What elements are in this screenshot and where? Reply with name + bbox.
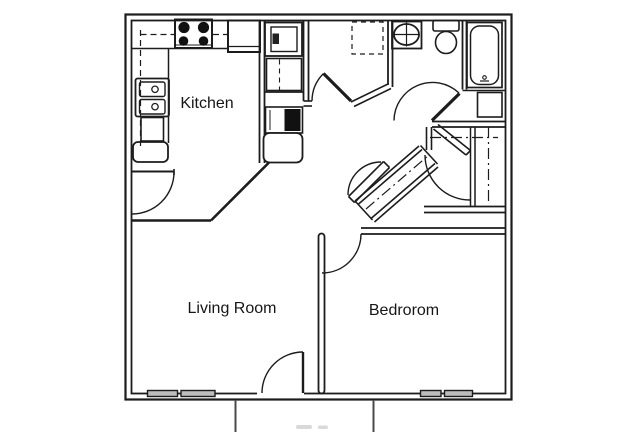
door-opening-eraser <box>257 391 304 396</box>
washer-icon <box>265 23 302 57</box>
window <box>421 391 442 397</box>
bathroom-door <box>394 82 460 120</box>
entry-door <box>262 352 303 393</box>
door-arc <box>312 74 324 102</box>
water-heater-icon <box>266 107 303 133</box>
hall-door <box>304 21 393 107</box>
room-label-bedroom: Bedrorom <box>369 302 439 319</box>
kitchen-area <box>132 20 270 221</box>
utility-column <box>260 21 309 164</box>
bathroom-area <box>352 21 506 121</box>
linen-shelf <box>478 93 503 118</box>
door-leaf <box>324 74 352 102</box>
walk-in-closet <box>424 122 506 213</box>
bedroom-door-arc <box>322 234 361 273</box>
refrigerator-icon <box>228 21 260 53</box>
room-label-kitchen: Kitchen <box>180 95 233 112</box>
bathtub-icon <box>463 21 503 90</box>
utility-end-cap <box>264 133 303 163</box>
window <box>181 391 215 397</box>
door-arc <box>425 155 470 200</box>
utility-cabinet-icon <box>267 59 302 91</box>
door-arc <box>348 162 381 195</box>
kitchen-diagonal-wall <box>211 163 269 221</box>
counter-end-cap <box>133 142 168 162</box>
window <box>148 391 178 397</box>
room-divider-wall <box>319 234 325 394</box>
dishwasher-icon <box>141 118 164 142</box>
window <box>445 391 473 397</box>
washer-dryer-dashed-alcove <box>352 22 383 54</box>
stove-icon <box>175 20 212 49</box>
toilet-icon <box>433 21 459 54</box>
closet-rod-lines <box>430 127 498 204</box>
faint-label-remnant <box>296 425 328 429</box>
left-closet-door <box>132 169 175 214</box>
floor-plan-page: Kitchen Living Room Bedrorom <box>0 0 640 432</box>
bathroom-sink-icon <box>392 22 422 49</box>
floor-plan-canvas: Kitchen Living Room Bedrorom <box>0 0 640 432</box>
door-leaf <box>432 94 460 121</box>
room-label-living-room: Living Room <box>188 300 277 317</box>
door-arc <box>262 352 303 393</box>
